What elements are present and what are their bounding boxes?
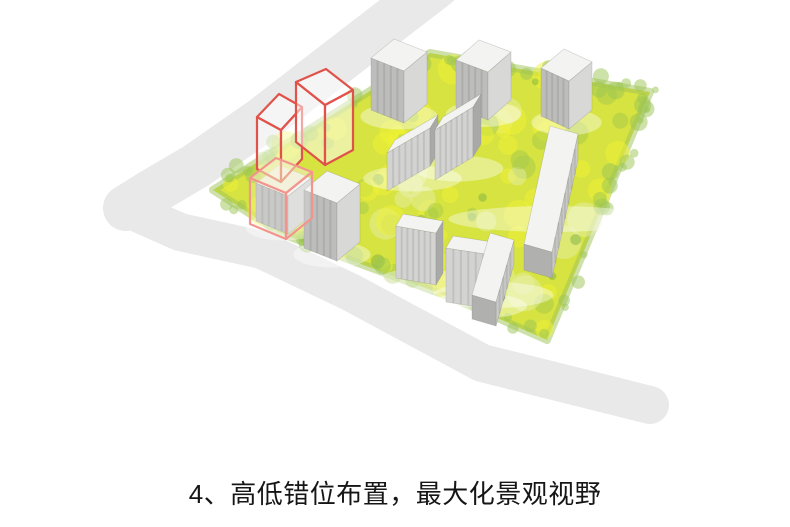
architecture-massing-diagram: 4、高低错位布置，最大化景观视野 [0, 0, 790, 527]
grass-blob [532, 78, 539, 85]
fringe-blob [507, 323, 518, 334]
fringe-blob [618, 163, 627, 172]
grass-blob [498, 136, 517, 155]
grass-blob [478, 193, 487, 202]
fringe-blob [602, 178, 618, 194]
fringe-blob [634, 79, 647, 92]
fringe-blob [374, 257, 391, 274]
fringe-blob [520, 68, 532, 80]
fringe-blob [637, 93, 647, 103]
grass-blob [612, 113, 628, 129]
grass-blob [442, 186, 459, 203]
site-diagram [0, 0, 790, 450]
fringe-blob [221, 168, 235, 182]
fringe-blob [242, 166, 252, 176]
fringe-blob [237, 200, 246, 209]
grass-blob [395, 190, 413, 208]
fringe-blob [539, 329, 549, 339]
caption: 4、高低错位布置，最大化景观视野 [0, 474, 790, 511]
fringe-blob [524, 320, 537, 333]
fringe-blob [444, 55, 454, 65]
fringe-blob [558, 295, 570, 307]
fringe-blob [572, 275, 585, 288]
fringe-blob [607, 82, 625, 100]
fringe-blob [644, 107, 650, 113]
fringe-blob [593, 68, 609, 84]
fringe-blob [593, 192, 607, 206]
fringe-blob [630, 149, 639, 158]
grass-blob [570, 234, 581, 245]
fringe-blob [220, 198, 233, 211]
fringe-blob [652, 87, 659, 94]
fringe-blob [580, 251, 587, 258]
grass-blob [511, 150, 530, 169]
grass-blob [508, 167, 527, 186]
grass-blob [428, 203, 444, 219]
